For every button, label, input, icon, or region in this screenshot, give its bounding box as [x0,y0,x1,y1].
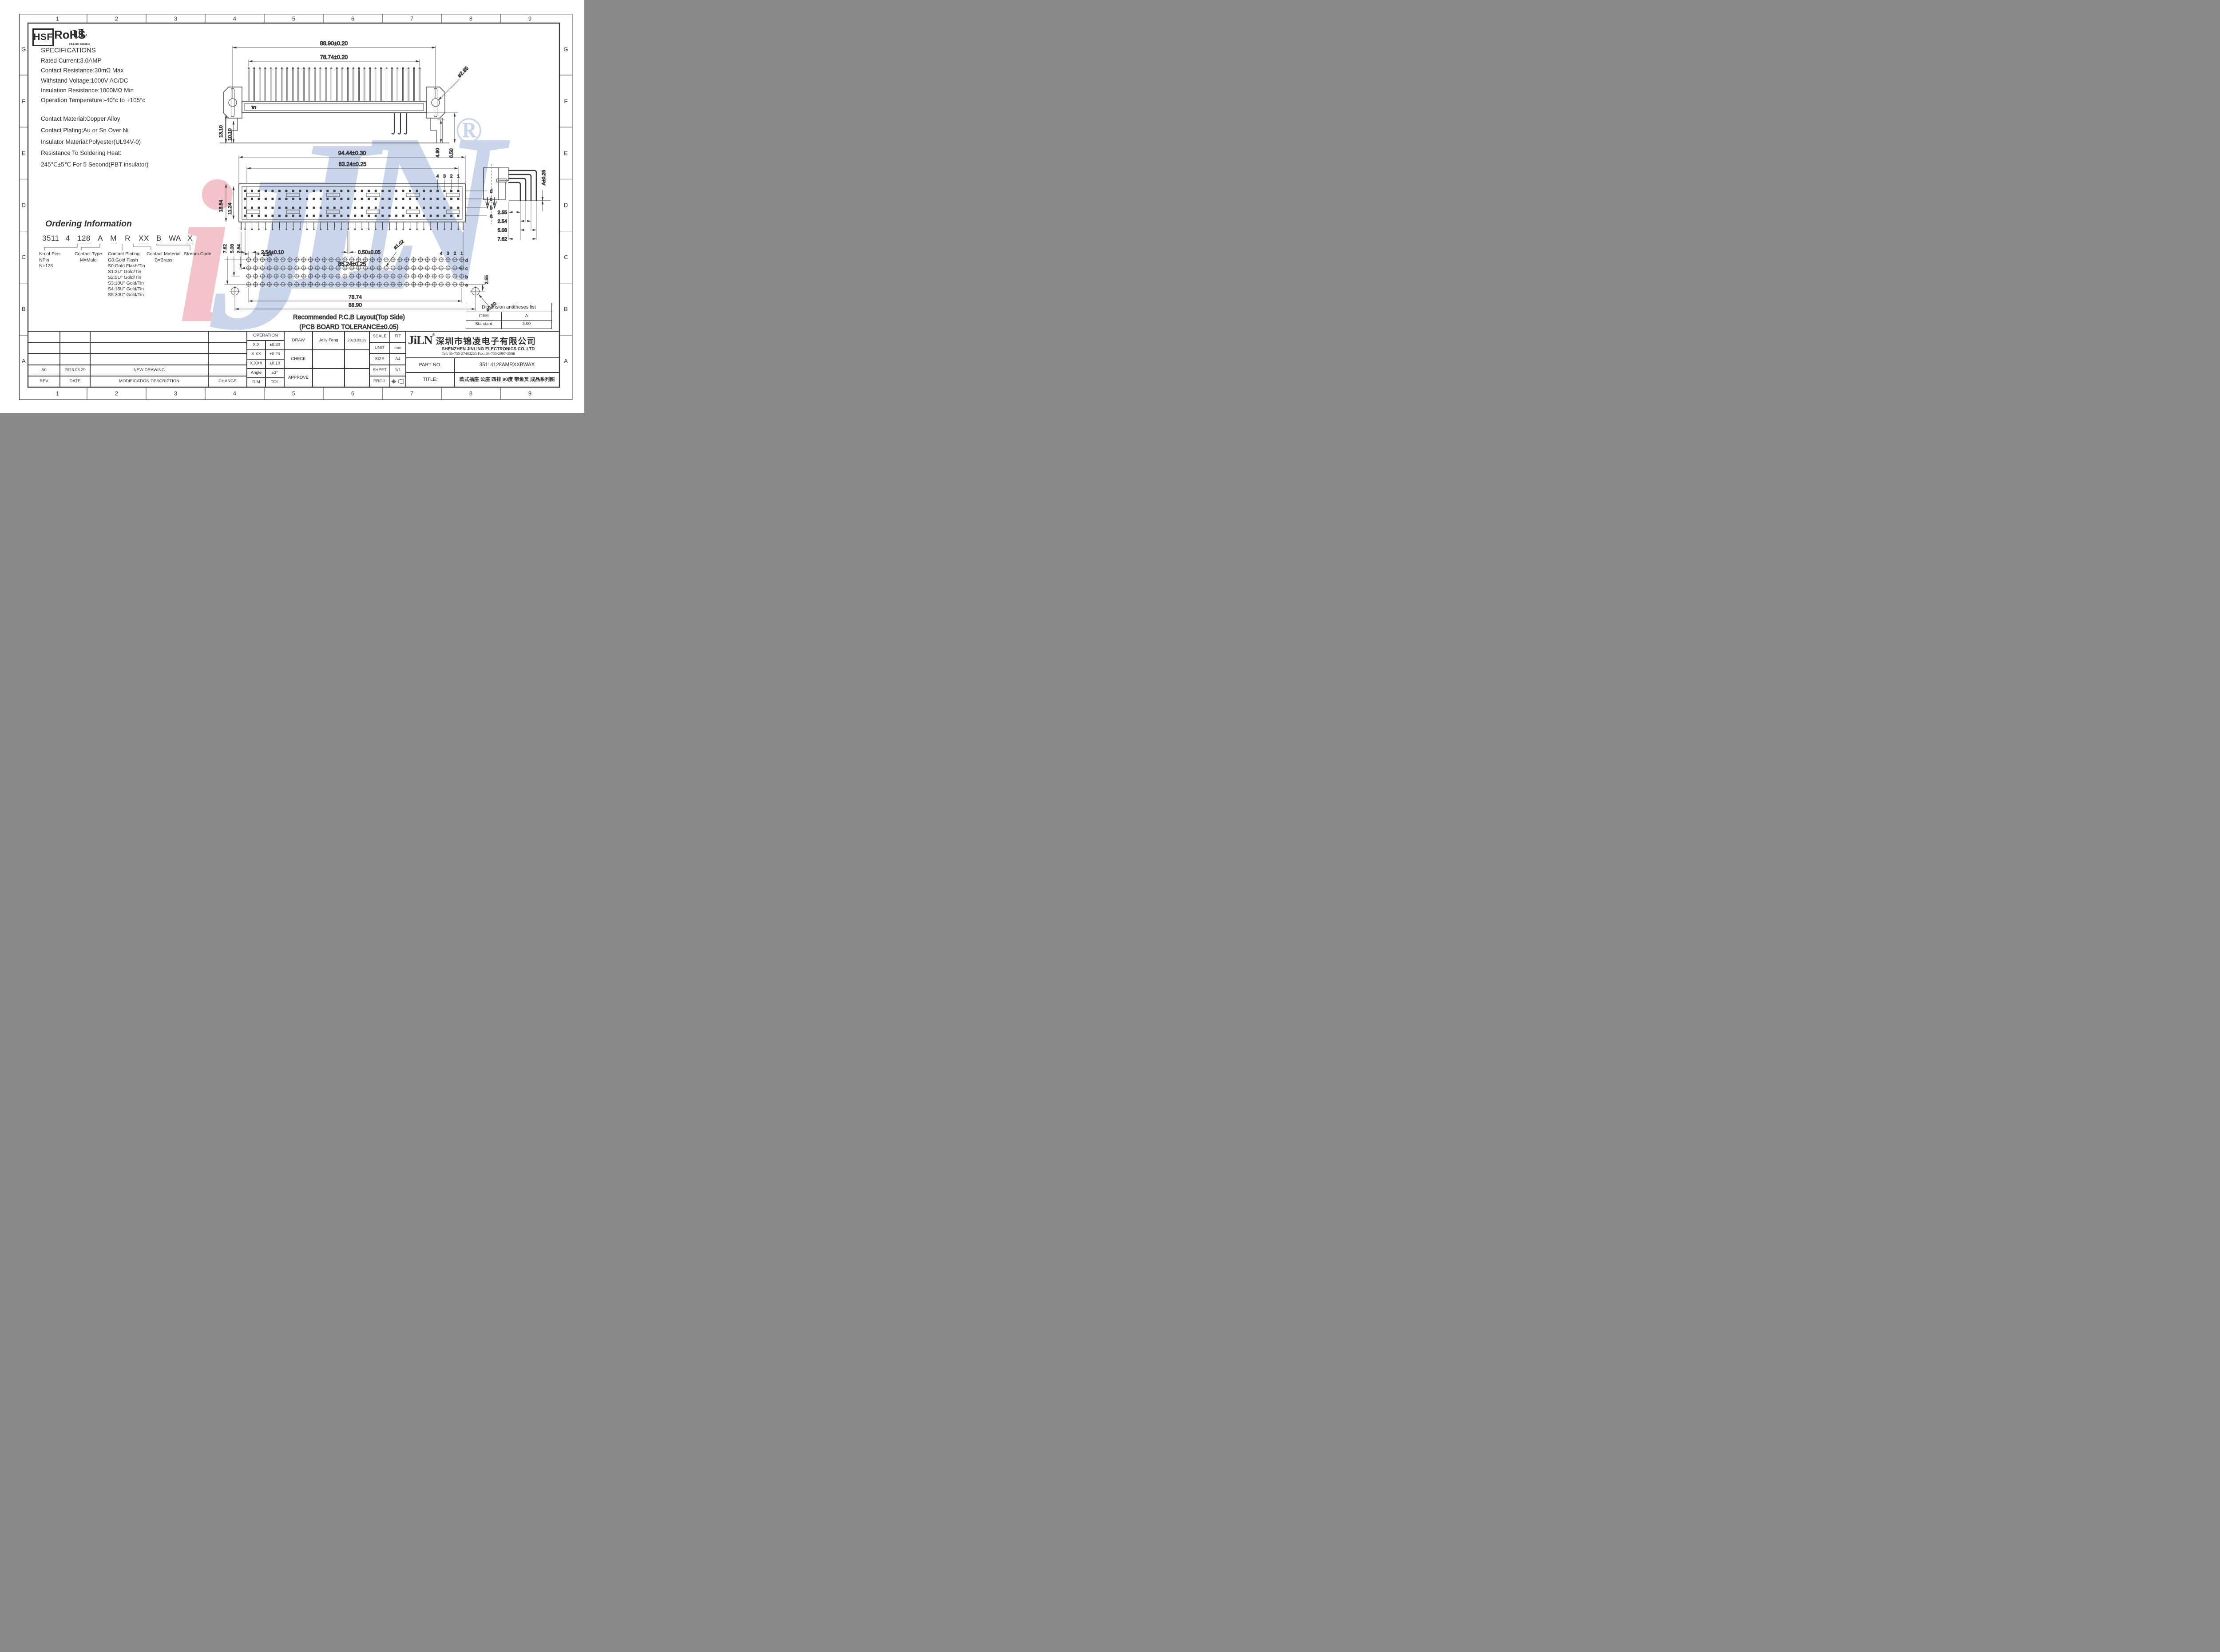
code-contact-type: M [110,234,117,243]
group-line: NPin [39,258,60,263]
spec-line: Rated Current:3.0AMP [41,57,145,67]
group-title: Contact Type [75,251,102,257]
pcb-dim-2-54v: 2.54 [236,244,242,254]
row-label-c: c [490,197,492,202]
ordering-group-material: Contact Material B=Brass [147,251,180,263]
spec-line: 245℃±5℃ For 5 Second(PBT insulator) [41,161,148,173]
ordering-group-pins: No.of Pins NPinN=128 [39,251,60,269]
pcb-col-4: 4 [440,251,443,256]
front-view-slots [246,193,460,214]
code-plating: XX [139,234,149,243]
group-line: S4:15U" Gold/Tin [108,286,145,292]
pcb-row-c: c [465,266,468,271]
group-line: S0:Gold Flash/Tin [108,263,145,269]
pcb-dim-2-55: 2.55 [484,275,489,285]
front-view-bottom-pins [245,222,459,230]
pcb-row-d: d [465,258,468,263]
pcb-dim-7-62: 7.62 [222,244,228,254]
ordering-leaders [44,244,190,250]
specifications-electrical: Rated Current:3.0AMPContact Resistance:3… [41,57,145,107]
group-line: B=Brass [147,258,180,263]
dim-6-50: 6.50 [449,148,454,158]
group-lines: NPinN=128 [39,258,60,269]
pcb-caption-2: (PCB BOARD TOLERANCE±0.05) [299,324,398,331]
front-view: d c b a 4 3 2 1 94.44±0.30 83.24±0.25 13… [218,150,493,270]
group-title: No.of Pins [39,251,60,257]
dim-7-62-side: 7.62 [498,237,507,242]
code-4: 4 [66,234,70,243]
top-view-pin-comb [248,67,420,101]
specifications-material: Contact Material:Copper AlloyContact Pla… [41,115,148,173]
spec-line: Contact Plating:Au or Sn Over Ni [41,127,148,139]
group-line: S1:3U" Gold/Tin [108,269,145,275]
spec-line: Insulation Resistance:1000MΩ Min [41,87,145,97]
group-line: S3:10U" Gold/Tin [108,281,145,286]
col-label-3: 3 [443,174,446,179]
group-lines: G0:Gold FlashS0:Gold Flash/TinS1:3U" Gol… [108,258,145,298]
dim-11-24: 11.24 [227,203,233,215]
dim-0-50: 0.50±0.05 [358,250,381,255]
group-line: G0:Gold Flash [108,258,145,263]
dim-10-10: 10.10 [227,128,233,141]
row-label-b: b [490,206,492,211]
pcb-dim-1-02: ø1.02 [392,239,405,251]
spec-line: Contact Resistance:30mΩ Max [41,67,145,77]
specifications-title: SPECIFICATIONS [41,47,96,54]
spec-line: Insulator Material:Polyester(UL94V-0) [41,139,148,150]
side-view: A±0.25 2.55 2.54 5.08 7.62 [484,164,551,242]
dim-13-10: 13.10 [218,125,224,138]
pcb-row-b: b [465,274,468,280]
group-line: M=Male [75,258,102,263]
group-title: Stream Code [184,251,211,257]
group-line: S5:30U" Gold/Tin [108,292,145,298]
dim-4-90: 4.90 [435,148,440,157]
code-wa: WA [169,234,181,243]
ordering-group-contact-type: Contact Type M=Male [75,251,102,263]
code-stream: X [187,234,193,243]
dim-83-24: 83.24±0.25 [339,161,367,167]
dim-88-90: 88.90±0.20 [320,40,348,47]
group-lines: B=Brass [147,258,180,263]
dim-2-55-side: 2.55 [498,210,507,215]
spec-line: Contact Material:Copper Alloy [41,115,148,127]
pcb-col-2: 2 [454,251,456,256]
top-view: UL 88.90±0.20 78.74±0.20 13.10 10.10 [218,40,470,158]
col-label-4: 4 [436,174,439,179]
dim-85-24: 85.24±0.25 [338,261,366,267]
pcb-col-1: 1 [460,251,463,256]
dim-78-74: 78.74±0.20 [320,54,348,60]
group-title: Contact Plating [108,251,145,257]
col-label-2: 2 [450,174,453,179]
engineering-drawing-sheet: i J L N ® UL [0,0,584,413]
pcb-row-a: a [465,282,468,288]
pcb-caption-1: Recommended P.C.B Layout(Top Side) [293,314,405,321]
row-label-a: a [490,214,493,219]
ordering-title: Ordering Information [45,219,132,229]
pcb-dim-pitch: 2.54 [263,252,272,257]
dim-94-44: 94.44±0.30 [338,150,366,156]
group-title: Contact Material [147,251,180,257]
ordering-part-code: 3511 4 128 A M R XX B WA X [42,234,193,243]
spec-line: Withstand Voltage:1000V AC/DC [41,77,145,87]
pcb-dim-2-80: ø2.80 [485,301,497,313]
front-view-pin-field [244,190,459,217]
pcb-dim-88-90: 88.90 [349,302,362,308]
pcb-dim-5-08: 5.08 [230,244,235,254]
dim-13-54: 13.54 [218,200,224,212]
ordering-group-stream: Stream Code [184,251,211,258]
group-line: S2:5U" Gold/Tin [108,275,145,281]
dim-2-54-side: 2.54 [498,219,507,224]
dim-hole-2-85: ø2.85 [457,66,470,79]
code-r: R [125,234,131,243]
ordering-group-plating: Contact Plating G0:Gold FlashS0:Gold Fla… [108,251,145,298]
row-label-d: d [490,189,492,194]
code-a: A [98,234,103,243]
ul-mark-on-housing: UL [251,105,257,110]
spec-line: Operation Temperature:-40°c to +105°c [41,97,145,107]
pcb-dim-78-74: 78.74 [349,294,362,300]
group-line: N=128 [39,263,60,269]
pcb-col-3: 3 [447,251,449,256]
code-material: B [156,234,162,243]
spec-line: Resistance To Soldering Heat: [41,150,148,161]
code-series: 3511 [42,234,59,243]
group-lines: M=Male [75,258,102,263]
dim-a-025: A±0.25 [541,170,547,186]
dim-5-08-side: 5.08 [498,228,507,233]
code-pins: 128 [77,234,91,243]
